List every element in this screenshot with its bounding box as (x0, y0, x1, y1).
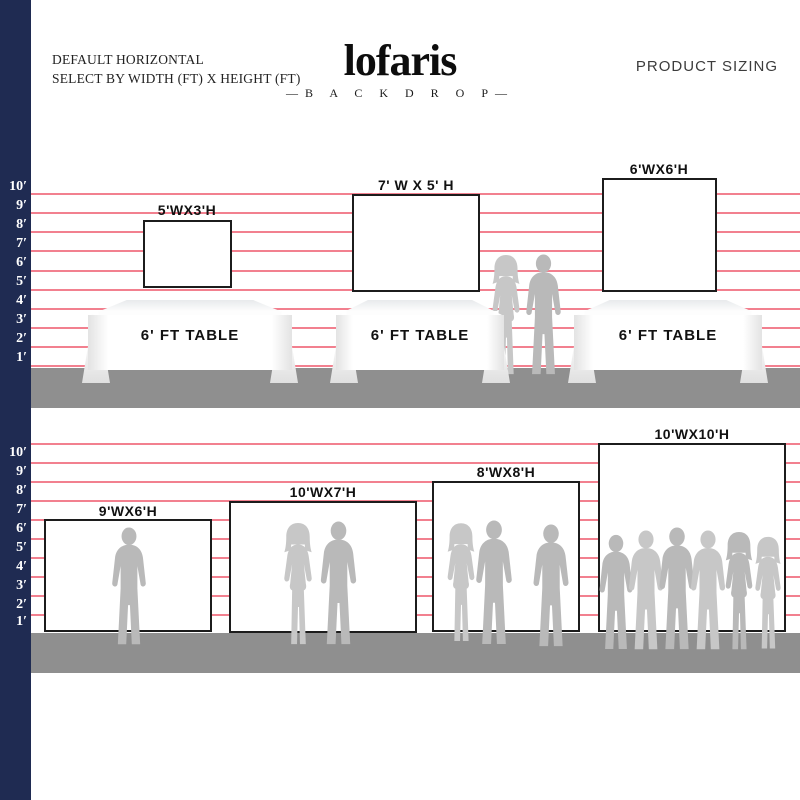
brand-name: lofaris (286, 38, 514, 84)
backdrop-size-label: 6'WX6'H (630, 161, 688, 177)
backdrop-size-label: 8'WX8'H (477, 464, 535, 480)
tablecloth-top (574, 300, 762, 316)
tablecloth-top (336, 300, 504, 316)
ruler-number: 1′ (0, 613, 27, 631)
backdrop-size-label: 10'WX7'H (290, 484, 357, 500)
ruler-bar (0, 0, 31, 800)
table-6ft-1: 6' FT TABLE (88, 300, 292, 370)
ruler-number: 9′ (0, 197, 27, 215)
backdrop-5x3 (143, 220, 232, 288)
table-label: 6' FT TABLE (141, 327, 239, 344)
ruler-number: 10′ (0, 178, 27, 196)
ruler-number: 2′ (0, 596, 27, 614)
ruler-number: 3′ (0, 577, 27, 595)
tablecloth-front: 6' FT TABLE (574, 315, 762, 370)
brand-logo: lofaris —B A C K D R O P— (286, 38, 514, 101)
ruler-number: 7′ (0, 501, 27, 519)
backdrop-size-label: 10'WX10'H (655, 426, 730, 442)
ruler-number: 9′ (0, 463, 27, 481)
ruler-number: 4′ (0, 558, 27, 576)
table-label: 6' FT TABLE (619, 327, 717, 344)
group-of-six-silhouette (596, 527, 792, 656)
ruler-number: 2′ (0, 330, 27, 348)
page-title: PRODUCT SIZING (636, 58, 778, 75)
ruler-number: 4′ (0, 292, 27, 310)
ruler-number: 1′ (0, 349, 27, 367)
table-label: 6' FT TABLE (371, 327, 469, 344)
table-6ft-3: 6' FT TABLE (574, 300, 762, 370)
backdrop-size-label: 7' W X 5' H (378, 177, 454, 193)
ground-band-top (31, 368, 800, 408)
man-silhouette (100, 527, 158, 650)
product-sizing-diagram: DEFAULT HORIZONTAL SELECT BY WIDTH (FT) … (0, 0, 800, 800)
tablecloth-top (88, 300, 292, 316)
ruler-number: 3′ (0, 311, 27, 329)
brand-subtitle: —B A C K D R O P— (286, 86, 514, 101)
backdrop-6x6 (602, 178, 717, 292)
ruler-number: 5′ (0, 539, 27, 557)
group-of-three-silhouette (440, 518, 576, 651)
tablecloth-front: 6' FT TABLE (336, 315, 504, 370)
ruler-number: 6′ (0, 254, 27, 272)
ruler-number: 8′ (0, 216, 27, 234)
table-6ft-2: 6' FT TABLE (336, 300, 504, 370)
ruler-number: 10′ (0, 444, 27, 462)
tablecloth-front: 6' FT TABLE (88, 315, 292, 370)
ruler-number: 8′ (0, 482, 27, 500)
couple-silhouette (276, 519, 368, 650)
ruler-number: 7′ (0, 235, 27, 253)
ruler-number: 6′ (0, 520, 27, 538)
backdrop-size-label: 5'WX3'H (158, 202, 216, 218)
instruction-line-1: DEFAULT HORIZONTAL (52, 50, 301, 69)
ruler-number: 5′ (0, 273, 27, 291)
instruction-line-2: SELECT BY WIDTH (FT) X HEIGHT (FT) (52, 69, 301, 88)
backdrop-7x5 (352, 194, 480, 292)
backdrop-size-label: 9'WX6'H (99, 503, 157, 519)
size-instructions: DEFAULT HORIZONTAL SELECT BY WIDTH (FT) … (52, 50, 301, 88)
